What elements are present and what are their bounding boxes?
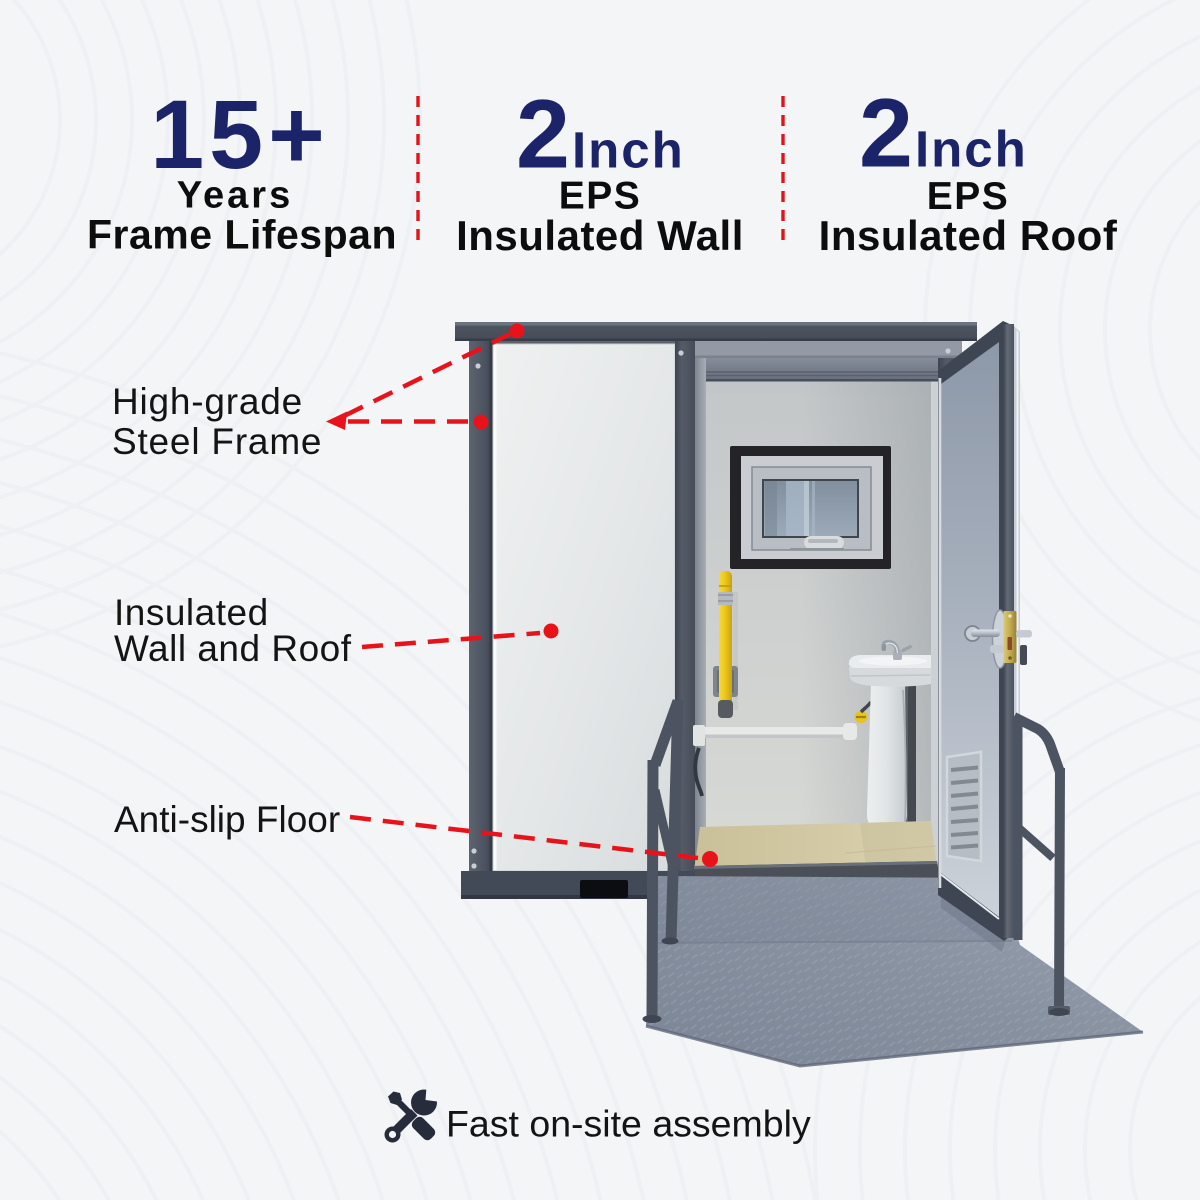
- svg-text:Wall and Roof: Wall and Roof: [114, 628, 352, 669]
- svg-text:Insulated: Insulated: [114, 592, 269, 633]
- svg-text:Fast on-site assembly: Fast on-site assembly: [446, 1103, 811, 1145]
- svg-text:High-grade: High-grade: [112, 381, 303, 422]
- svg-text:Insulated Roof: Insulated Roof: [819, 212, 1118, 259]
- svg-text:15+: 15+: [150, 80, 330, 189]
- svg-text:Anti-slip Floor: Anti-slip Floor: [114, 799, 340, 840]
- svg-text:Frame Lifespan: Frame Lifespan: [87, 212, 397, 258]
- svg-text:Insulated Wall: Insulated Wall: [456, 212, 744, 259]
- svg-text:Years: Years: [177, 175, 293, 217]
- svg-text:Steel Frame: Steel Frame: [112, 421, 322, 462]
